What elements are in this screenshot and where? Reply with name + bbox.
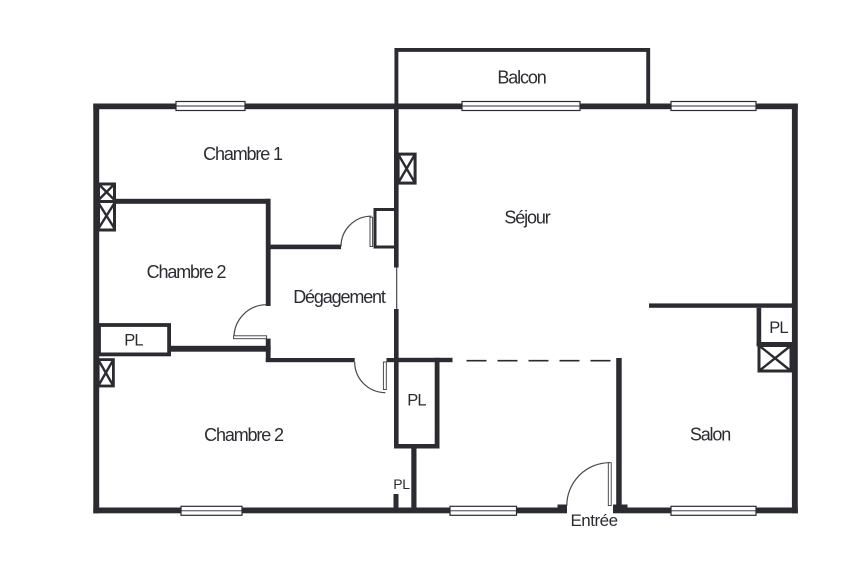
svg-text:Balcon: Balcon (497, 68, 545, 88)
svg-text:PL: PL (407, 392, 426, 410)
svg-text:PL: PL (393, 476, 410, 492)
svg-text:Salon: Salon (690, 425, 730, 445)
svg-text:Chambre 2: Chambre 2 (147, 262, 227, 282)
svg-text:Chambre 1: Chambre 1 (203, 144, 283, 164)
svg-text:Séjour: Séjour (504, 208, 550, 228)
svg-text:Chambre 2: Chambre 2 (204, 425, 284, 445)
svg-text:PL: PL (769, 319, 788, 337)
svg-text:Dégagement: Dégagement (293, 287, 386, 307)
svg-text:PL: PL (124, 331, 143, 349)
svg-text:Entrée: Entrée (570, 511, 617, 530)
